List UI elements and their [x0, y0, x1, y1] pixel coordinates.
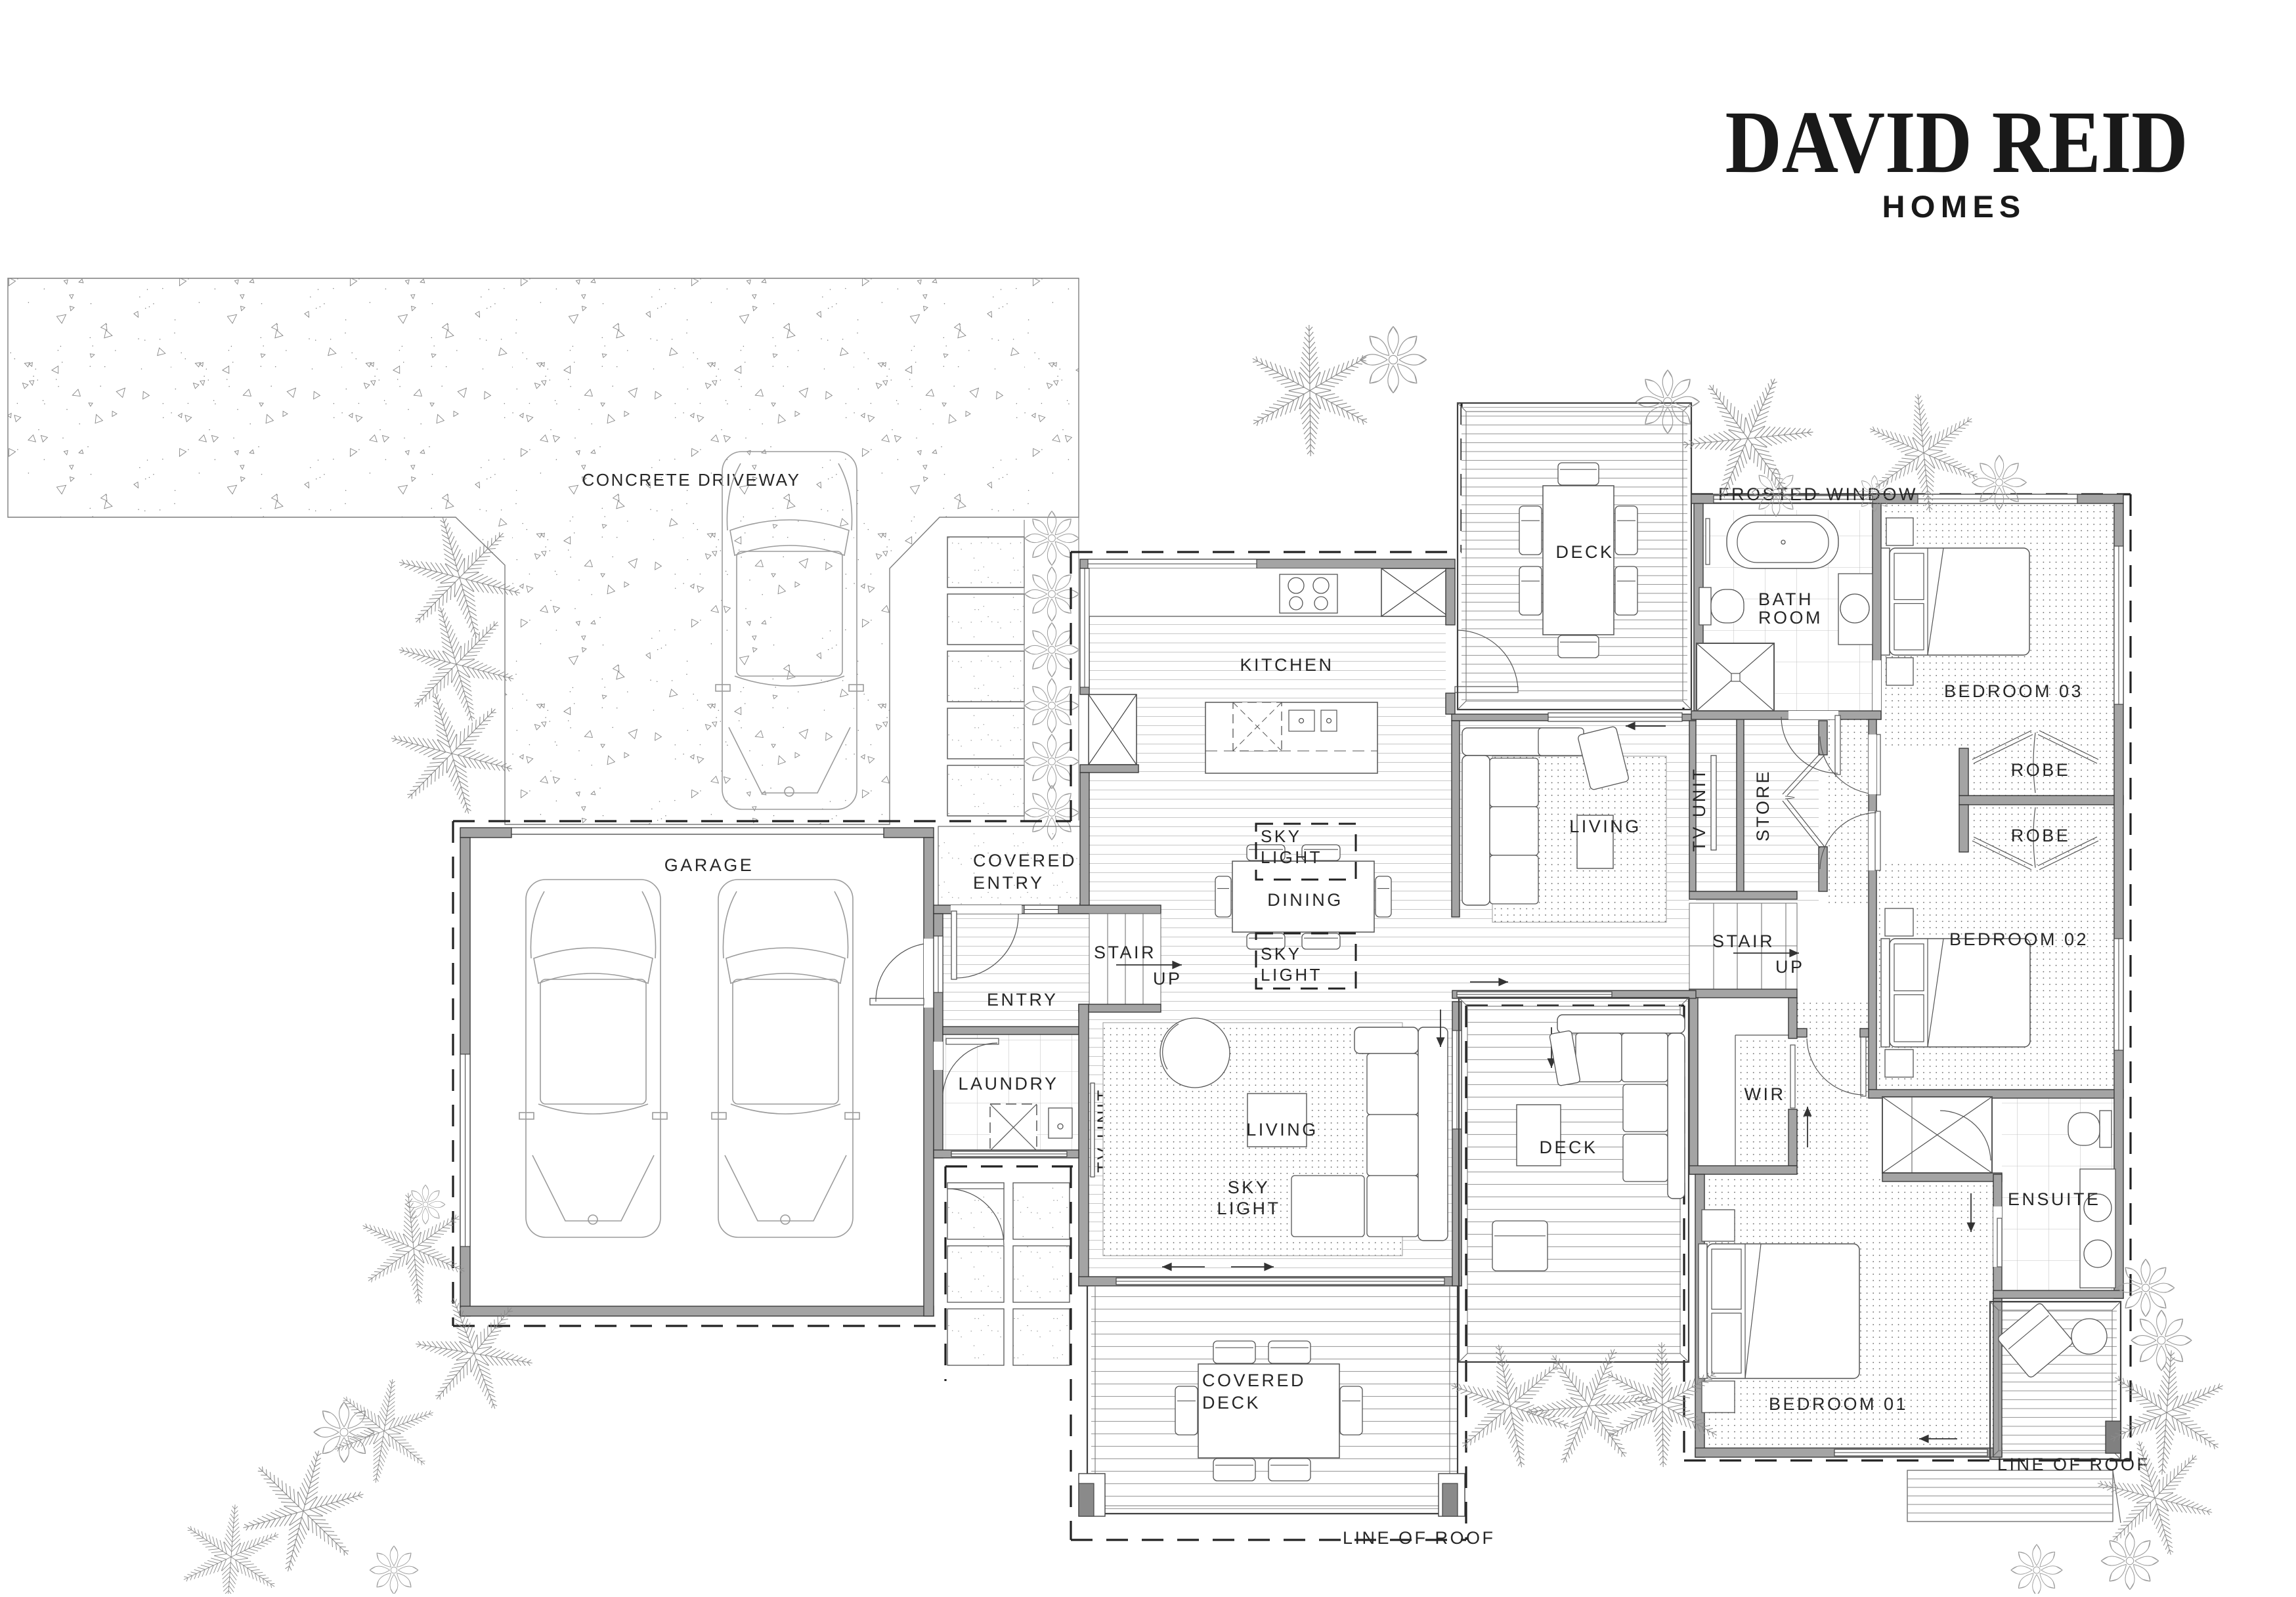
svg-text:CONCRETE DRIVEWAY: CONCRETE DRIVEWAY	[582, 470, 800, 490]
svg-text:ENTRY: ENTRY	[973, 873, 1045, 893]
svg-text:KITCHEN: KITCHEN	[1240, 655, 1333, 675]
svg-text:ENSUITE: ENSUITE	[2008, 1189, 2101, 1209]
svg-text:LIVING: LIVING	[1569, 817, 1641, 836]
svg-text:ROBE: ROBE	[2011, 760, 2071, 780]
svg-text:SKY: SKY	[1261, 826, 1302, 846]
svg-text:ROOM: ROOM	[1758, 608, 1823, 628]
svg-text:LIGHT: LIGHT	[1217, 1199, 1280, 1218]
svg-text:COVERED: COVERED	[1202, 1371, 1306, 1390]
svg-text:HOMES: HOMES	[1882, 189, 2026, 224]
svg-text:ENTRY: ENTRY	[987, 990, 1058, 1010]
svg-text:GARAGE: GARAGE	[664, 855, 754, 875]
svg-text:LAUNDRY: LAUNDRY	[958, 1074, 1058, 1094]
svg-text:UP: UP	[1153, 969, 1182, 989]
svg-text:FROSTED WINDOW: FROSTED WINDOW	[1718, 484, 1918, 504]
svg-text:WIR: WIR	[1744, 1084, 1786, 1104]
svg-text:LINE OF ROOF: LINE OF ROOF	[1997, 1455, 2150, 1474]
svg-text:STAIR: STAIR	[1712, 931, 1775, 951]
svg-text:DECK: DECK	[1539, 1138, 1597, 1157]
svg-text:STORE: STORE	[1753, 769, 1773, 841]
svg-text:BEDROOM 02: BEDROOM 02	[1949, 929, 2089, 949]
svg-text:LINE OF ROOF: LINE OF ROOF	[1343, 1528, 1496, 1548]
svg-text:BATH: BATH	[1758, 589, 1813, 609]
svg-text:SKY: SKY	[1228, 1178, 1270, 1197]
svg-text:BEDROOM 01: BEDROOM 01	[1769, 1394, 1908, 1414]
svg-text:LIGHT: LIGHT	[1261, 965, 1322, 985]
svg-text:ROBE: ROBE	[2011, 826, 2071, 845]
svg-text:DINING: DINING	[1267, 890, 1343, 910]
svg-text:DECK: DECK	[1555, 542, 1614, 562]
svg-text:TV UNIT: TV UNIT	[1689, 767, 1709, 852]
svg-text:LIGHT: LIGHT	[1261, 847, 1322, 867]
svg-text:BEDROOM 03: BEDROOM 03	[1944, 681, 2083, 701]
svg-text:STAIR: STAIR	[1094, 943, 1156, 962]
svg-text:LIVING: LIVING	[1246, 1120, 1318, 1139]
svg-text:UP: UP	[1775, 957, 1805, 977]
svg-text:DECK: DECK	[1202, 1393, 1261, 1413]
svg-text:DAVID REID: DAVID REID	[1725, 93, 2188, 192]
svg-text:COVERED: COVERED	[973, 851, 1077, 870]
svg-text:SKY: SKY	[1261, 944, 1302, 964]
